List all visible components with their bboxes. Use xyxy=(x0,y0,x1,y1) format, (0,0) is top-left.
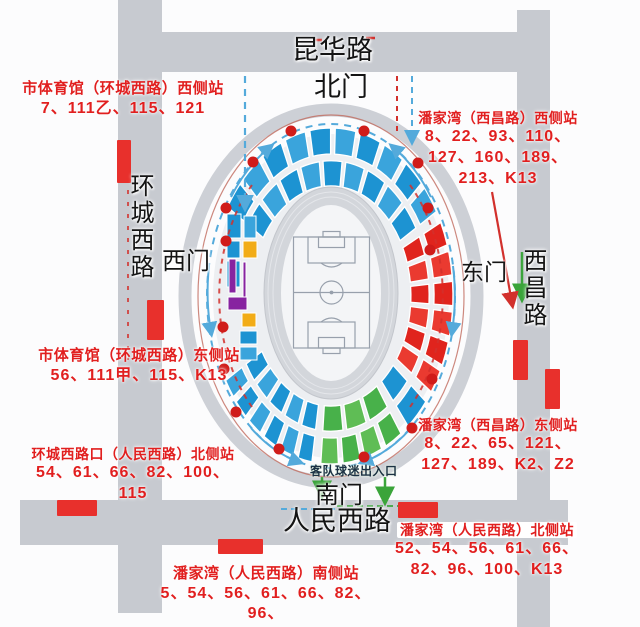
stop-routes: 8、22、65、121、 xyxy=(406,434,590,455)
stop-routes: 5、54、56、61、66、82、96、 xyxy=(150,584,382,626)
stop-name: 市体育馆（环城西路）东侧站 xyxy=(33,346,245,366)
stop-routes: 7、111乙、115、121 xyxy=(17,99,229,120)
entrance-dot xyxy=(218,322,229,333)
bus-stop-label-panjiawan-xichang-west: 潘家湾（西昌路）西侧站 8、22、93、110、 127、160、189、 21… xyxy=(405,109,591,190)
gate-label-north: 北门 xyxy=(314,74,368,101)
stop-routes: 127、160、189、 xyxy=(405,148,591,169)
stop-routes: 82、96、100、K13 xyxy=(393,560,581,581)
west-stand-block xyxy=(242,313,256,327)
bus-stop-label-shitiyuguan-west: 市体育馆（环城西路）西侧站 7、111乙、115、121 xyxy=(17,79,229,119)
stop-name-text: 潘家湾（人民西路）北侧站 xyxy=(397,522,577,538)
stop-routes: 52、54、56、61、66、 xyxy=(393,539,581,560)
west-stand-block xyxy=(243,241,257,258)
west-stand-block xyxy=(240,331,257,344)
entrance-dot xyxy=(248,157,259,168)
road-label-xichang: 西昌路 xyxy=(520,248,544,329)
entrance-dot xyxy=(221,236,232,247)
stop-routes: 56、111甲、115、K13 xyxy=(33,366,245,387)
entrance-dot xyxy=(425,245,436,256)
bus-stop-label-huanchengxiluk-north: 环城西路口（人民西路）北侧站 54、61、66、82、100、115 xyxy=(22,445,244,505)
stop-name: 潘家湾（人民西路）北侧站 xyxy=(393,521,581,539)
west-stand-block xyxy=(229,259,236,293)
bus-stop-label-panjiawan-renmin-south: 潘家湾（人民西路）南侧站 5、54、56、61、66、82、96、 100、10… xyxy=(150,564,382,627)
gate-label-south: 南门 xyxy=(315,484,363,508)
stop-name: 市体育馆（环城西路）西侧站 xyxy=(17,79,229,99)
seat-block xyxy=(411,284,430,304)
entrance-dot xyxy=(221,203,232,214)
entrance-dot xyxy=(359,452,370,463)
road-label-renmin: 人民西路 xyxy=(283,508,391,535)
gate-label-east: 东门 xyxy=(461,261,507,284)
west-stand-block xyxy=(228,297,247,310)
bus-stop-marker xyxy=(147,300,164,340)
entrance-dot xyxy=(427,374,438,385)
entrance-dot xyxy=(359,126,370,137)
stop-routes: 54、61、66、82、100、115 xyxy=(22,463,244,505)
entrance-dot xyxy=(423,203,434,214)
stop-routes: 127、189、K2、Z2 xyxy=(406,455,590,476)
stop-name: 潘家湾（人民西路）南侧站 xyxy=(150,564,382,584)
entrance-dot xyxy=(286,126,297,137)
gate-label-west: 西门 xyxy=(162,250,210,274)
seat-block xyxy=(323,405,343,431)
seat-block xyxy=(321,438,339,465)
stop-name: 潘家湾（西昌路）西侧站 xyxy=(405,109,591,127)
seat-block xyxy=(335,128,356,157)
bus-stop-label-panjiawan-renmin-north: 潘家湾（人民西路）北侧站 52、54、56、61、66、 82、96、100、K… xyxy=(393,521,581,581)
bus-stop-label-panjiawan-xichang-east: 潘家湾（西昌路）东侧站 8、22、65、121、 127、189、K2、Z2 xyxy=(406,416,590,476)
bus-stop-marker xyxy=(513,340,528,380)
stadium-transit-map: 昆华路 北门 环城西路 西门 东门 西昌路 南门 人民西路 客队球迷出入口 市体… xyxy=(0,0,640,627)
bus-stop-marker xyxy=(398,502,438,518)
seat-block xyxy=(323,161,342,187)
stop-name: 潘家湾（西昌路）东侧站 xyxy=(406,416,590,434)
bus-stop-marker xyxy=(218,539,263,554)
stop-routes: 213、K13 xyxy=(405,169,591,190)
road-label-huancheng: 环城西路 xyxy=(127,173,151,281)
stop-name: 环城西路口（人民西路）北侧站 xyxy=(22,445,244,463)
road-label-kunhua: 昆华路 xyxy=(292,37,373,64)
bus-stop-marker xyxy=(545,369,560,409)
away-fans-entrance-label: 客队球迷出入口 xyxy=(310,462,398,479)
bus-stop-label-shitiyuguan-east: 市体育馆（环城西路）东侧站 56、111甲、115、K13 xyxy=(33,346,245,386)
stop-routes: 8、22、93、110、 xyxy=(405,127,591,148)
stop-pointer-arrow xyxy=(492,192,512,303)
seat-block xyxy=(310,128,331,156)
west-stand-block xyxy=(244,216,256,238)
entrance-dot xyxy=(231,407,242,418)
entrance-dot xyxy=(274,444,285,455)
